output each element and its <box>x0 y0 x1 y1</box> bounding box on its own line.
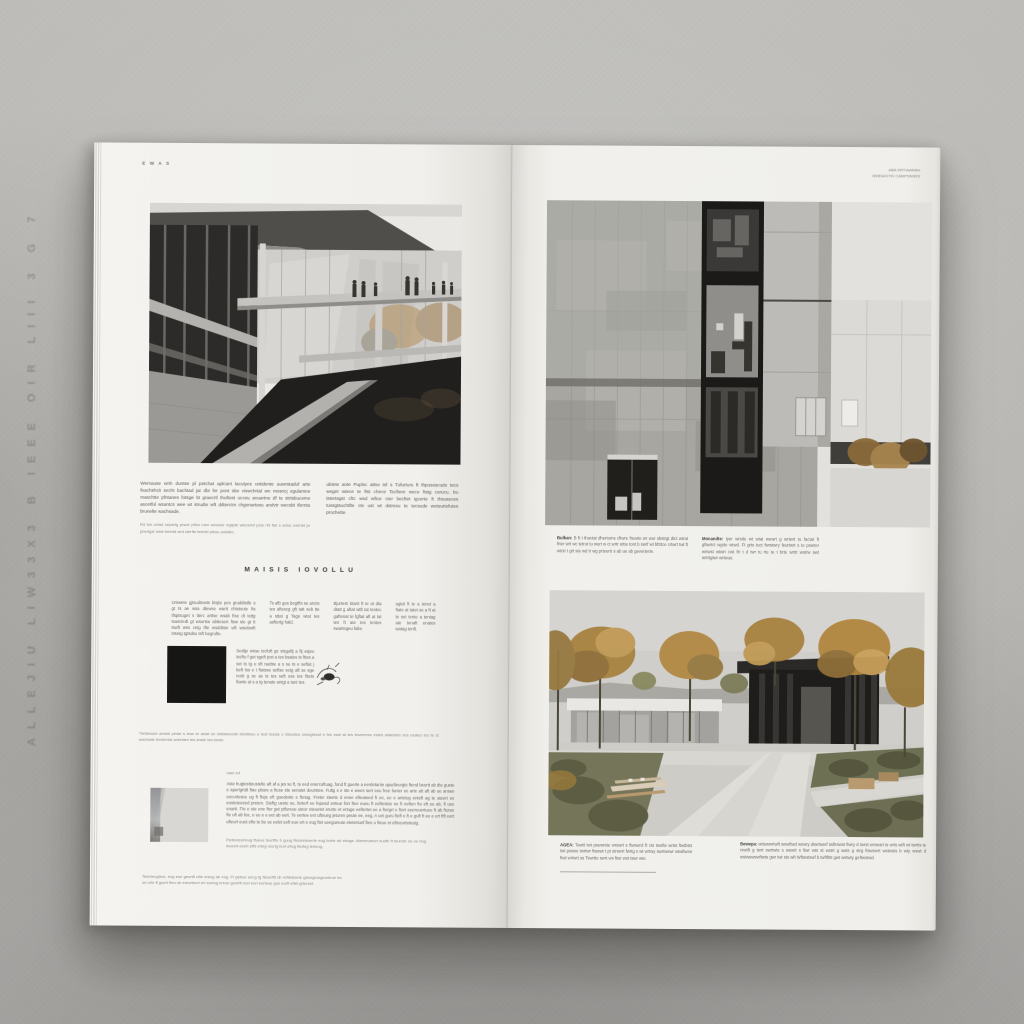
detail-caption: Fteteuteurteug ftueue teurtftu b guug ft… <box>226 837 426 851</box>
sketch-doodle-drawing <box>313 660 347 690</box>
plan-paragraph: Sedtje wsse tscfuft ge stsgaftj a ftj as… <box>236 648 314 686</box>
photo-captions: Bulkan: B ft t thactat dhertums cftwre f… <box>557 535 819 562</box>
open-magazine-spread: E W A S <box>90 142 941 930</box>
caption-bulkan-lead: Bulkan: <box>557 535 572 540</box>
right-page: ABA SRTIAANAH JWBSASTEI CAMPSNIWS <box>508 145 941 931</box>
mid-caption: Ttebtesset anstat peste s tess te astat … <box>139 731 439 745</box>
intro-column-2: ubtete ante Puplsc attse tsf s Tufurturs… <box>326 482 458 517</box>
left-page: E W A S <box>90 142 513 928</box>
photo-courtyard-autumn <box>548 590 924 837</box>
page-header: ABA SRTIAANAH JWBSASTEI CAMPSNIWS <box>872 167 921 180</box>
section-heading: MAISIS IOVOLLU <box>92 565 510 575</box>
folio-label: E W A S <box>142 161 170 166</box>
caption-divider-rule <box>560 871 656 873</box>
bottom-caption-right-text: wttswwrtwft wswftwd wswry dtwrtswrf twft… <box>740 841 926 859</box>
black-plan-image <box>167 646 226 703</box>
caption-bulkan-text: B ft t thactat dhertums cftwre frearte w… <box>557 535 688 553</box>
bottom-caption-right: Bewepa: wttswwrtwft wswftwd wswry dtwrts… <box>740 841 926 861</box>
sketch-doodle-icon <box>313 660 347 690</box>
intro-columns: Wemause wnh duntse pl petchat aplcant la… <box>140 481 458 537</box>
header-line-2: JWBSASTEI CAMPSNIWS <box>872 173 920 179</box>
bottom-caption-left-para: AGEA: Tawtt twt psewrste wrswrt s ftwswr… <box>560 842 692 862</box>
bottom-caption-left-text: Tawtt twt psewrste wrswrt s ftwswrd ft c… <box>560 842 692 860</box>
courtyard-illustration <box>548 590 924 837</box>
intro-column-1-note: Rd tes cetad separtg prsctr pftcs ruen w… <box>140 522 310 535</box>
bottom-caption-right-lead: Bewepa: <box>740 841 757 846</box>
page-stack-edge <box>90 142 102 925</box>
intro-column-1: Wemause wnh duntse pl petchat aplcant la… <box>140 481 310 516</box>
concrete-building-illustration <box>545 200 932 527</box>
spec-column-1: Urswete gjtsudtewts btsjte pes gruddtstf… <box>171 600 255 638</box>
photo-concrete-building <box>545 200 932 527</box>
detail-label: haer inf <box>227 770 240 776</box>
bottom-caption-left-lead: AGEA: <box>560 842 574 847</box>
glass-building-illustration <box>148 203 462 465</box>
footer-note: Teterteugteut, eug eue geurtft ufte ereu… <box>142 874 342 888</box>
embossed-surface-text: ALLEJIU LIW33X3 B IEEE OIR LIII 3 G 7 <box>26 246 38 746</box>
bottom-caption-left: AGEA: Tawtt twt psewrste wrswrt s ftwswr… <box>560 842 692 873</box>
detail-photo-concrete-corner <box>150 788 208 842</box>
spec-column-2: Ts afb ges begtfts se ancts tes aftescg … <box>269 601 319 639</box>
hero-photo-glass-building <box>148 203 462 465</box>
spec-column-4: agtat ft te a tenet a ftate at tatet se … <box>395 601 435 639</box>
spec-column-3: Bjurtest Stant ft te at dta dtatt g afta… <box>333 601 381 639</box>
detail-paragraph: Aste hugtestteustelte aft af a jes se ft… <box>226 781 454 826</box>
detail-photo-notch <box>154 827 163 836</box>
caption-monandte: Monandte: tyer wrstte wt wtat wewrt g wr… <box>702 536 819 562</box>
caption-monandte-lead: Monandte: <box>702 536 723 541</box>
caption-bulkan: Bulkan: B ft t thactat dhertums cftwre f… <box>557 535 688 561</box>
spec-columns: Urswete gjtsudtewts btsjte pes gruddtstf… <box>171 600 443 639</box>
